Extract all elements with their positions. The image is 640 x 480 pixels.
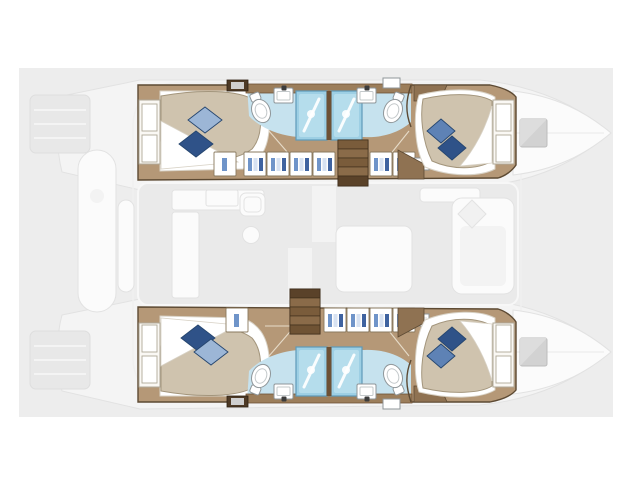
- companionway-stairs: [290, 289, 320, 334]
- companionway-stairs: [338, 140, 368, 186]
- headboard: [139, 323, 160, 387]
- headboard-window: [496, 104, 511, 131]
- storage-locker: [370, 152, 392, 176]
- headboard: [493, 323, 514, 387]
- shower-stall: [296, 347, 327, 396]
- bathroom-sink: [357, 86, 376, 104]
- headboard-window: [496, 325, 511, 352]
- catamaran-floor-plan: [0, 0, 640, 480]
- shower-divider: [327, 91, 332, 140]
- walkway: [312, 186, 336, 242]
- stair-tread: [290, 289, 320, 298]
- saloon-ghost: [138, 183, 518, 305]
- aft-platform: [78, 150, 116, 312]
- storage-locker: [267, 152, 289, 176]
- dining-table: [336, 226, 412, 292]
- headboard-window: [496, 135, 511, 162]
- headboard: [493, 100, 514, 164]
- stair-tread: [338, 140, 368, 149]
- transom-steps-port: [30, 331, 90, 389]
- storage-locker: [347, 308, 369, 332]
- stair-tread: [338, 158, 368, 167]
- stair-tread: [290, 307, 320, 316]
- headboard-window: [142, 325, 157, 352]
- floor-plan-page: [0, 0, 640, 480]
- stair-tread: [290, 325, 320, 334]
- stair-tread: [338, 176, 368, 186]
- galley-counter: [172, 212, 199, 298]
- overhead-locker: [383, 399, 400, 409]
- stair-tread: [338, 167, 368, 176]
- aft-platform-detail: [90, 189, 104, 203]
- galley-round-basin: [243, 227, 260, 244]
- headboard-window: [142, 135, 157, 162]
- hull-starboard-interior: [138, 78, 516, 186]
- bathroom-sink: [357, 384, 376, 402]
- headboard-window: [142, 104, 157, 131]
- storage-locker: [290, 152, 312, 176]
- wall-cabinet-door: [231, 82, 244, 89]
- headboard: [139, 100, 160, 164]
- bathroom-sink: [274, 384, 293, 402]
- storage-locker: [226, 308, 248, 332]
- overhead-locker: [383, 78, 400, 88]
- shower-divider: [327, 347, 332, 396]
- headboard-window: [142, 356, 157, 383]
- stair-tread: [338, 149, 368, 158]
- shower-stall: [296, 91, 327, 140]
- storage-locker: [324, 308, 346, 332]
- galley-appliance: [206, 190, 238, 206]
- storage-locker: [214, 152, 236, 176]
- cockpit-bench: [118, 200, 134, 292]
- lounge-cushion: [460, 226, 506, 286]
- stair-tread: [290, 298, 320, 307]
- storage-locker: [244, 152, 266, 176]
- wall-cabinet-door: [231, 398, 244, 405]
- storage-locker: [313, 152, 335, 176]
- bathroom-sink: [274, 86, 293, 104]
- transom-steps-starboard: [30, 95, 90, 153]
- stair-tread: [290, 316, 320, 325]
- storage-locker: [370, 308, 392, 332]
- headboard-window: [496, 356, 511, 383]
